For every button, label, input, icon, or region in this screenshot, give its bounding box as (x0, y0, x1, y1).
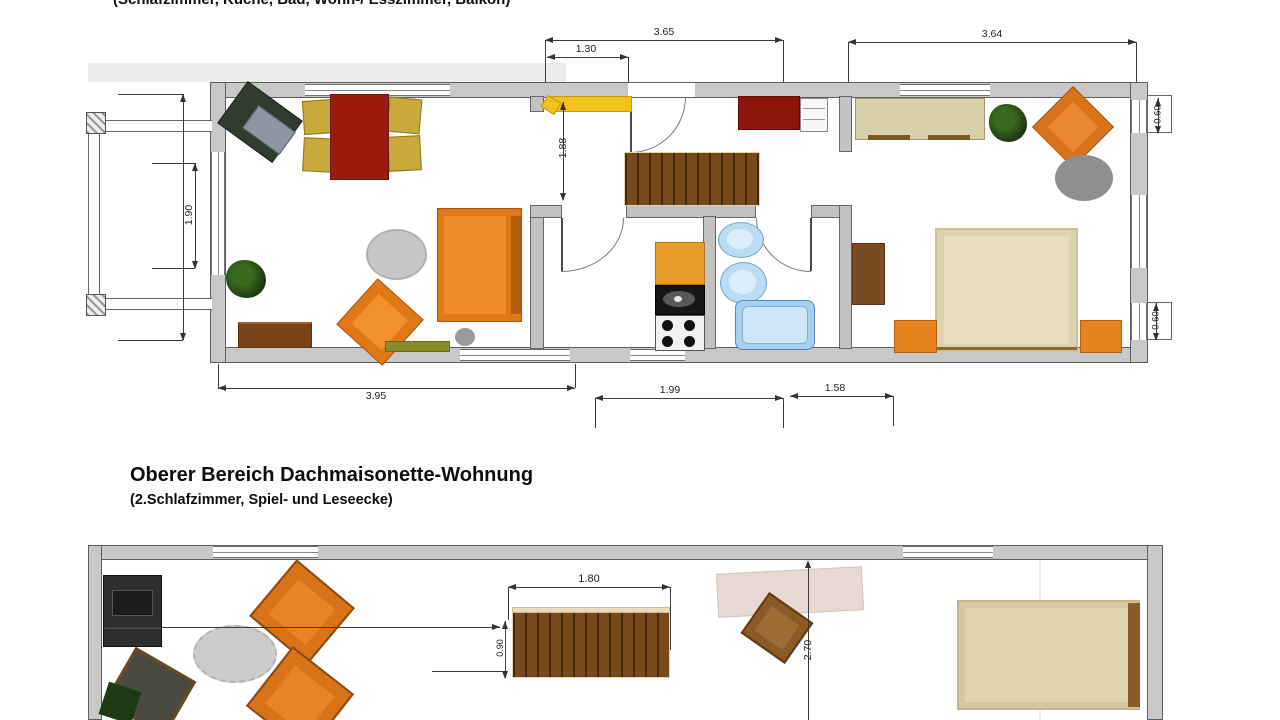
arrow-icon (560, 102, 566, 110)
wall-hall-kitchen-b (626, 205, 756, 218)
dim-label: 3.64 (972, 28, 1012, 40)
window-plan2-right (903, 546, 993, 558)
dim-label: 1.30 (566, 43, 606, 55)
nightstand-line (803, 108, 825, 109)
dining-table (330, 94, 389, 180)
burner (684, 320, 695, 331)
dimension-line (790, 396, 893, 397)
entrance-door-swing (630, 97, 686, 153)
arrow-icon (885, 393, 893, 399)
arrow-icon (492, 624, 500, 630)
dresser (852, 243, 885, 305)
arrow-icon (775, 37, 783, 43)
dim-label: 3.65 (644, 26, 684, 38)
balcony-post-bottom (86, 294, 106, 316)
sofa-cushion (444, 216, 506, 314)
sink-faucet (674, 296, 682, 302)
balcony-rail-left (88, 120, 100, 310)
arrow-icon (502, 671, 508, 679)
nightstand-line (803, 119, 825, 120)
roof-shade-band (88, 63, 566, 82)
nightstand-white (800, 98, 828, 132)
window-right-top (1131, 100, 1147, 133)
dimension-ext (575, 364, 576, 388)
window-right-bottom (1131, 303, 1147, 340)
sofa-armrest (511, 216, 521, 314)
arrow-icon (560, 193, 566, 201)
dim-label: 1.90 (183, 200, 195, 230)
dining-chair (387, 135, 422, 172)
dim-label: 0.60 (1151, 307, 1162, 335)
burner (684, 336, 695, 347)
bedroom-rug (1055, 155, 1113, 201)
wardrobe (855, 98, 985, 140)
bed-headboard (936, 347, 1077, 350)
burner (662, 320, 673, 331)
wall-bath-bedroom (839, 205, 852, 349)
kitchen-door-swing (561, 218, 624, 272)
dim-label: 1.88 (557, 133, 569, 163)
wardrobe-base (928, 135, 970, 140)
arrow-icon (218, 385, 226, 391)
dimension-line (505, 621, 506, 678)
dimension-line (595, 398, 783, 399)
section-subtitle: (2.Schlafzimmer, Spiel- und Leseecke) (130, 492, 393, 508)
arrow-icon (180, 94, 186, 102)
arrow-icon (620, 54, 628, 60)
daybed-red (738, 96, 800, 130)
dim-label: 1.80 (569, 573, 609, 585)
arrow-icon (502, 621, 508, 629)
dimension-ext (118, 94, 183, 95)
shaggy-rug (193, 625, 277, 683)
dim-label: 1.99 (650, 384, 690, 396)
dimension-ext (783, 398, 784, 428)
dimension-ext (848, 42, 849, 82)
dimension-line (508, 587, 670, 588)
arrow-icon (805, 560, 811, 568)
stairs-landing-edge (512, 607, 670, 613)
bath-door-swing (756, 218, 811, 272)
entrance-opening (628, 83, 695, 97)
arrow-icon (508, 584, 516, 590)
wall-hall-bedroom-top (839, 96, 852, 152)
plan2-wall-left (88, 545, 102, 720)
floorplan-page: (Schlafzimmer, Küche, Bad, Wohn-/ Esszim… (0, 0, 1280, 720)
balcony-door-opening (211, 152, 225, 275)
dimension-ext (628, 57, 629, 82)
arrow-icon (192, 163, 198, 171)
dimension-ext (152, 268, 195, 269)
caption-lower-rooms: (Schlafzimmer, Küche, Bad, Wohn-/ Esszim… (113, 0, 510, 8)
toilet-bowl (729, 270, 756, 294)
plant (226, 260, 266, 298)
dimension-ext (432, 671, 505, 672)
bench (385, 341, 450, 352)
bathtub-inner (742, 306, 808, 344)
plan2-wall-right (1147, 545, 1163, 720)
arrow-icon (662, 584, 670, 590)
bed-upper-headboard (1128, 603, 1140, 707)
washbasin-bowl (727, 229, 753, 249)
wall-hall-kitchen-a (530, 205, 562, 218)
stairs-upper (512, 612, 670, 678)
dimension-line (545, 40, 783, 41)
wardrobe-base (868, 135, 910, 140)
window-bedroom-top (900, 84, 990, 96)
dimension-line (105, 627, 500, 628)
dimension-ext (783, 40, 784, 82)
tv-screen (112, 590, 153, 616)
nightstand-orange (894, 320, 937, 353)
dining-chair (387, 97, 423, 135)
wall-living-kitchen (530, 205, 544, 349)
dimension-line (848, 42, 1136, 43)
dimension-line (218, 388, 575, 389)
burner (662, 336, 673, 347)
stove (655, 315, 705, 351)
nightstand-orange (1080, 320, 1122, 353)
balcony-post-top (86, 112, 106, 134)
plant (989, 104, 1027, 142)
dimension-ext (118, 340, 183, 341)
window-living-bottom (460, 349, 570, 361)
dimension-ext (1136, 42, 1137, 82)
section-title: Oberer Bereich Dachmaisonette-Wohnung (130, 464, 533, 487)
tv-unit-shelf-line (104, 628, 161, 629)
stairs-lower (624, 152, 760, 206)
balcony-rail-bottom (88, 298, 212, 310)
dimension-ext (218, 364, 219, 388)
arrow-icon (775, 395, 783, 401)
arrow-icon (545, 37, 553, 43)
sideboard (238, 322, 312, 348)
balcony-rail-top (88, 120, 212, 132)
bed-upper-cover (965, 608, 1128, 702)
arrow-icon (595, 395, 603, 401)
floor-ball (455, 328, 475, 346)
dimension-ext (545, 40, 546, 82)
dim-label: 0.90 (495, 634, 505, 662)
living-rug (366, 229, 427, 280)
dimension-ext (670, 587, 671, 650)
dimension-ext (595, 398, 596, 428)
arrow-icon (567, 385, 575, 391)
dimension-ext (893, 396, 894, 426)
dimension-ext (508, 587, 509, 620)
dimension-line (547, 57, 628, 58)
dim-label: 1.58 (815, 382, 855, 394)
dim-label: 2.70 (802, 634, 814, 666)
window-plan2-left (213, 546, 318, 558)
arrow-icon (547, 54, 555, 60)
dim-label: 0.60 (1153, 101, 1164, 129)
kitchen-counter (655, 242, 705, 285)
window-right-middle (1131, 195, 1147, 268)
arrow-icon (1128, 39, 1136, 45)
dimension-ext (152, 163, 195, 164)
bed-cover (944, 236, 1069, 344)
arrow-icon (848, 39, 856, 45)
arrow-icon (790, 393, 798, 399)
dim-label: 3.95 (356, 390, 396, 402)
dimension-line (195, 163, 196, 268)
